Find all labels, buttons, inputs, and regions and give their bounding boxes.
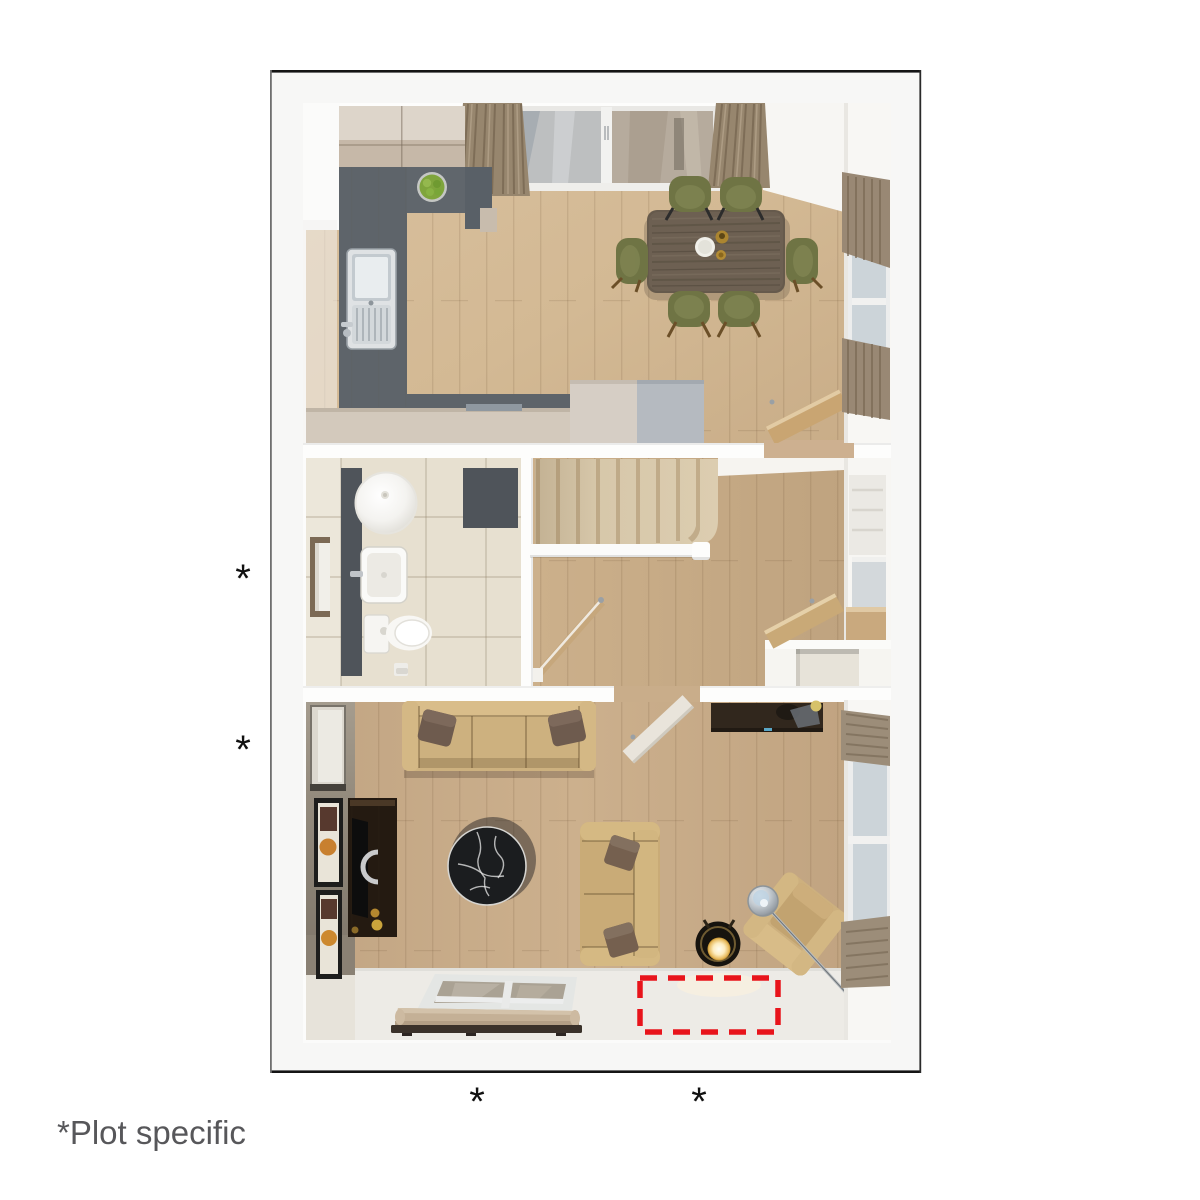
svg-text:*: * [235,728,251,772]
svg-text:*: * [691,1080,707,1124]
svg-text:*: * [235,557,251,601]
svg-text:*Plot specific: *Plot specific [57,1114,246,1151]
svg-text:*: * [469,1080,485,1124]
